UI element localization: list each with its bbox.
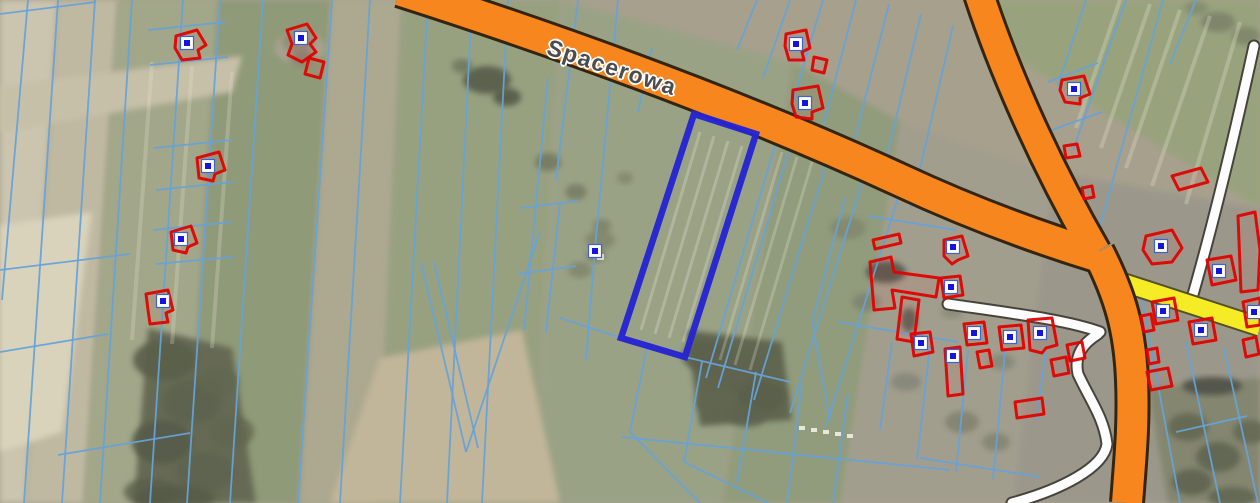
- building-outline: [1051, 357, 1069, 376]
- building-marker-dot-icon: [592, 248, 598, 254]
- tree-blob: [1184, 1, 1208, 15]
- tree-blob: [210, 416, 254, 448]
- tree-blob: [593, 219, 611, 233]
- ground-spot: [847, 434, 853, 438]
- tree-blob: [696, 389, 736, 415]
- building-outline: [1238, 212, 1260, 292]
- tree-blob: [891, 373, 921, 391]
- tree-blob: [617, 172, 633, 184]
- tree-blob: [568, 262, 592, 278]
- tree-blob: [198, 368, 238, 396]
- tree-blob: [1196, 442, 1240, 472]
- map-canvas[interactable]: [0, 0, 1260, 503]
- ground-spot: [811, 428, 817, 432]
- building-outline: [1243, 337, 1259, 357]
- building-outline: [977, 350, 992, 368]
- building-outline: [812, 57, 827, 73]
- building-marker-dot-icon: [971, 330, 977, 336]
- tree-blob: [493, 88, 521, 106]
- tree-blob: [133, 340, 197, 380]
- building-marker-dot-icon: [178, 236, 184, 242]
- building-marker-dot-icon: [793, 41, 799, 47]
- building-marker-dot-icon: [918, 340, 924, 346]
- building-marker-dot-icon: [1216, 268, 1222, 274]
- building-marker-dot-icon: [802, 100, 808, 106]
- building-outline: [305, 58, 324, 78]
- tree-blob: [565, 184, 587, 200]
- building-outline: [1141, 314, 1154, 332]
- building-outline: [1064, 144, 1080, 158]
- building-outline: [1015, 398, 1044, 418]
- building-marker-dot-icon: [948, 284, 954, 290]
- building-marker-dot-icon: [950, 244, 956, 250]
- tree-blob: [989, 354, 1015, 370]
- building-marker-dot-icon: [1251, 309, 1257, 315]
- building-outline: [1067, 342, 1085, 361]
- ground-spot: [835, 432, 841, 436]
- building-marker-dot-icon: [160, 298, 166, 304]
- building-marker-dot-icon: [950, 353, 956, 359]
- tree-blob: [175, 452, 235, 492]
- ground-spot: [823, 430, 829, 434]
- map-viewport[interactable]: Spacerowa: [0, 0, 1260, 503]
- building-marker-dot-icon: [1160, 308, 1166, 314]
- building-marker-dot-icon: [205, 163, 211, 169]
- building-marker-dot-icon: [1007, 334, 1013, 340]
- building-outline: [1147, 368, 1172, 390]
- building-outline: [1082, 186, 1094, 199]
- building-marker-dot-icon: [1037, 330, 1043, 336]
- building-marker-dot-icon: [298, 35, 304, 41]
- building-marker-dot-icon: [1198, 327, 1204, 333]
- ground-spot: [799, 426, 805, 430]
- building-marker-dot-icon: [1158, 243, 1164, 249]
- building-marker-dot-icon: [184, 40, 190, 46]
- building-marker-dot-icon: [1071, 86, 1077, 92]
- building-outline: [1147, 348, 1159, 364]
